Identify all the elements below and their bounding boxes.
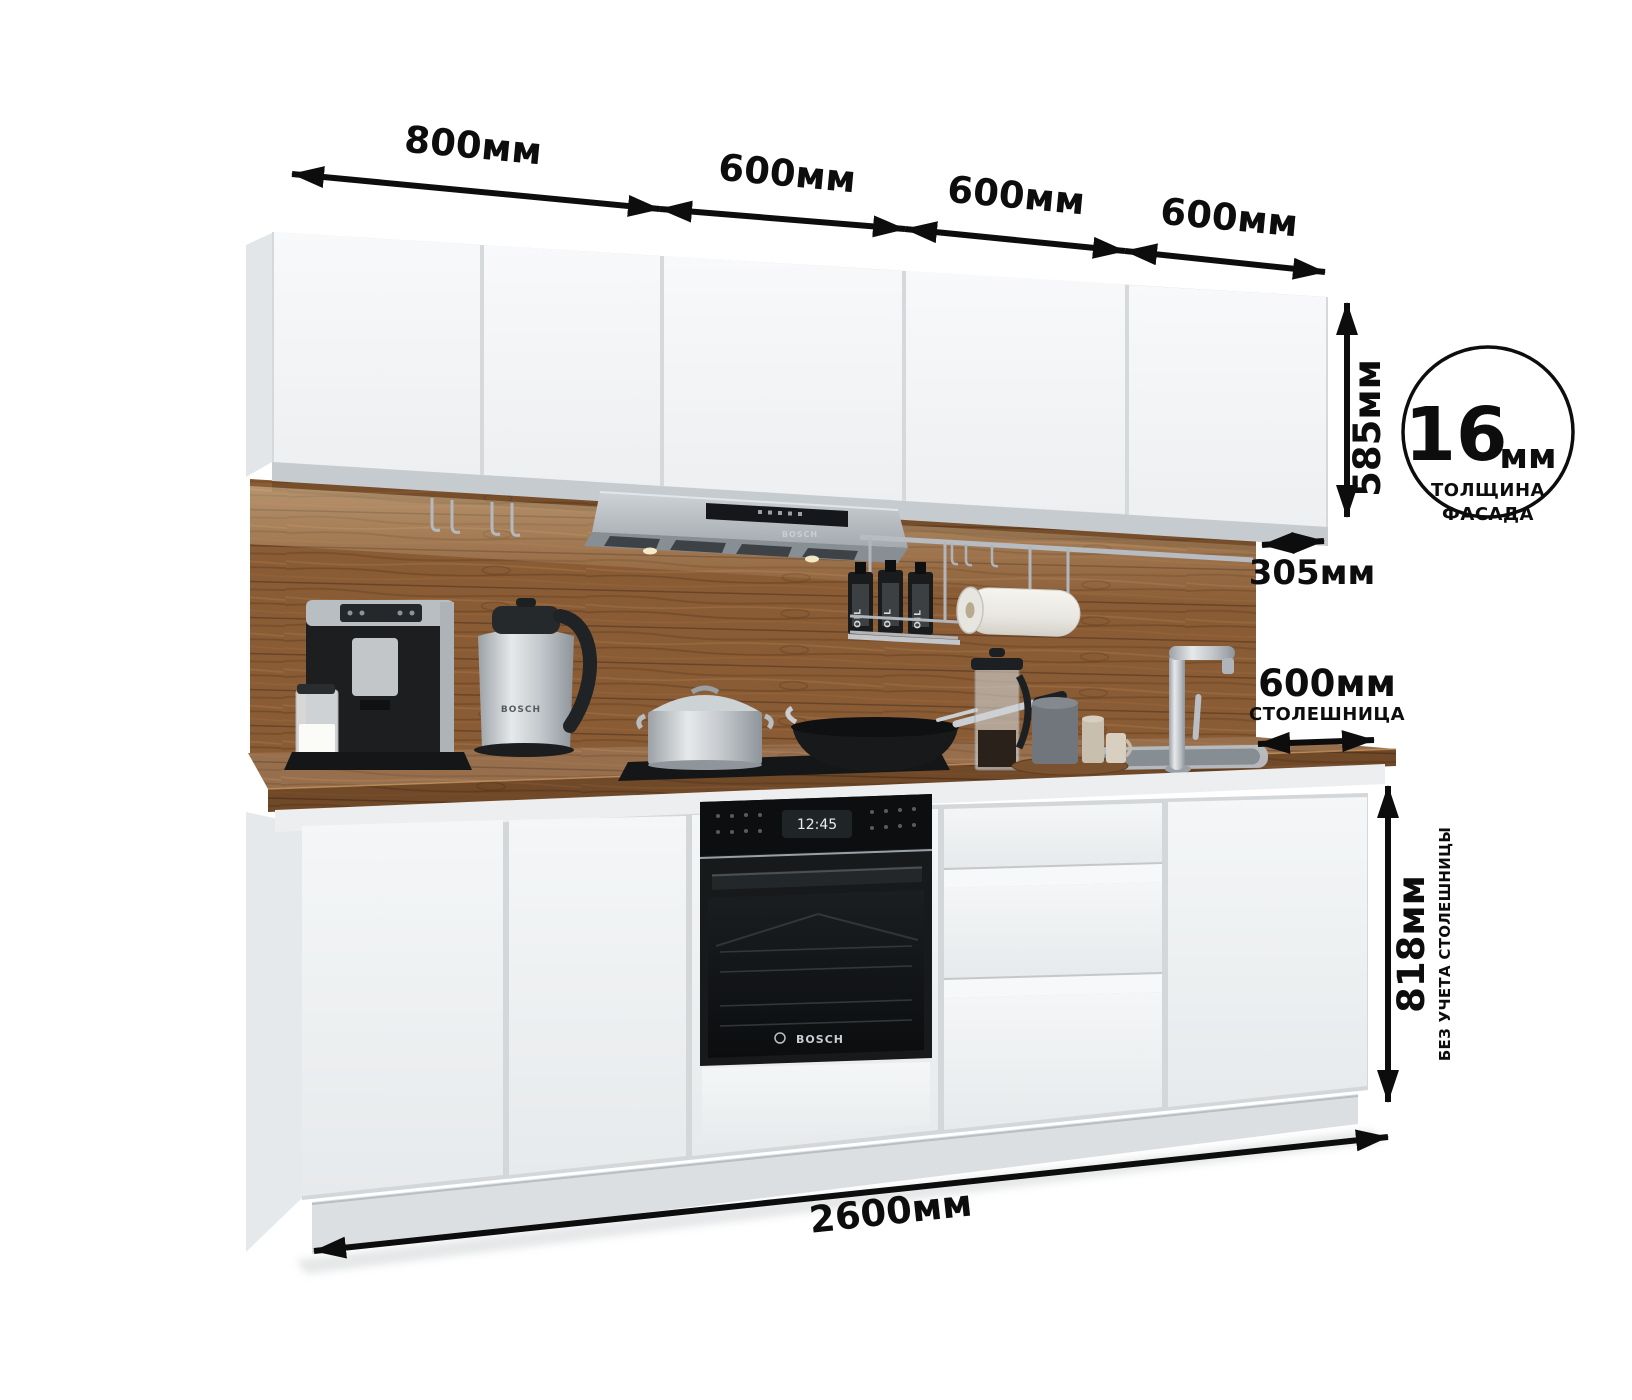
badge-caption: ТОЛЩИНА bbox=[1431, 480, 1545, 501]
dim-label: 600мм bbox=[1258, 662, 1396, 705]
dim-width-600-1: 600мм bbox=[660, 146, 905, 229]
product-dimension-diagram: BOSCH OIL bbox=[0, 0, 1632, 1400]
cup bbox=[1106, 733, 1126, 763]
dim-base-height: 818мм БЕЗ УЧЕТА СТОЛЕШНИЦЫ bbox=[1388, 786, 1454, 1102]
dim-label: 818мм bbox=[1390, 875, 1433, 1013]
badge-value: 16 bbox=[1405, 392, 1508, 478]
upper-side-panel bbox=[246, 233, 272, 477]
drawer-2 bbox=[944, 882, 1162, 978]
badge-caption: ФАСАДА bbox=[1442, 504, 1534, 525]
oven-display-time: 12:45 bbox=[797, 817, 837, 833]
hood-light bbox=[643, 548, 657, 555]
dim-label: 305мм bbox=[1249, 553, 1376, 593]
dim-upper-height: 585мм bbox=[1346, 303, 1389, 517]
upper-door-2 bbox=[484, 245, 660, 486]
dim-label: 600мм bbox=[1159, 190, 1300, 246]
canister bbox=[1032, 702, 1078, 764]
dim-label: 800мм bbox=[403, 118, 544, 174]
dim-caption: СТОЛЕШНИЦА bbox=[1249, 704, 1405, 725]
oven: 12:45 BOSCH bbox=[700, 794, 932, 1066]
dim-width-600-2: 600мм bbox=[905, 168, 1125, 251]
drawer-unit bbox=[944, 803, 1162, 1130]
kitchen-scene: BOSCH OIL bbox=[0, 0, 1632, 1400]
hood-light bbox=[805, 556, 819, 563]
sink-cabinet-door bbox=[1168, 797, 1367, 1107]
oil-bottle-3: OIL bbox=[908, 562, 933, 635]
dim-width-600-3: 600мм bbox=[1125, 190, 1325, 272]
kettle-logo: BOSCH bbox=[501, 705, 541, 715]
oil-bottle-2: OIL bbox=[878, 560, 903, 634]
oil-bottle-1: OIL bbox=[848, 562, 873, 634]
upper-door-1 bbox=[274, 232, 480, 475]
badge-unit: мм bbox=[1499, 437, 1556, 477]
jar bbox=[1082, 718, 1104, 763]
coffee-brew-unit bbox=[352, 638, 398, 696]
svg-text:BOSCH: BOSCH bbox=[796, 1033, 844, 1046]
dim-upper-depth: 305мм bbox=[1249, 541, 1376, 593]
dim-width-800: 800мм bbox=[292, 118, 660, 209]
facade-thickness-badge: 16 мм ТОЛЩИНА ФАСАДА bbox=[1403, 347, 1573, 525]
base-door-2 bbox=[509, 816, 686, 1175]
upper-door-3 bbox=[664, 256, 902, 501]
dim-label: 585мм bbox=[1346, 359, 1389, 497]
dim-label: 2600мм bbox=[807, 1181, 974, 1241]
paper-towel-roll bbox=[956, 587, 1081, 637]
coffee-drip-tray bbox=[284, 752, 472, 770]
oven-housing: 12:45 BOSCH bbox=[692, 794, 938, 1156]
milk-carafe bbox=[296, 684, 338, 762]
coffee-machine bbox=[284, 600, 472, 770]
dim-caption: БЕЗ УЧЕТА СТОЛЕШНИЦЫ bbox=[1436, 827, 1454, 1061]
dim-label: 600мм bbox=[717, 146, 858, 202]
hood-logo: BOSCH bbox=[782, 530, 818, 539]
base-door-1 bbox=[302, 820, 503, 1196]
oil-bottles: OIL OIL OIL bbox=[848, 560, 933, 635]
dim-label: 600мм bbox=[946, 168, 1087, 224]
upper-door-4 bbox=[906, 271, 1125, 514]
drawer-3 bbox=[944, 992, 1162, 1130]
dim-countertop-depth: 600мм СТОЛЕШНИЦА bbox=[1249, 662, 1405, 744]
upper-door-5 bbox=[1129, 285, 1326, 527]
drawer-1 bbox=[944, 803, 1162, 868]
base-side-panel bbox=[246, 812, 302, 1252]
